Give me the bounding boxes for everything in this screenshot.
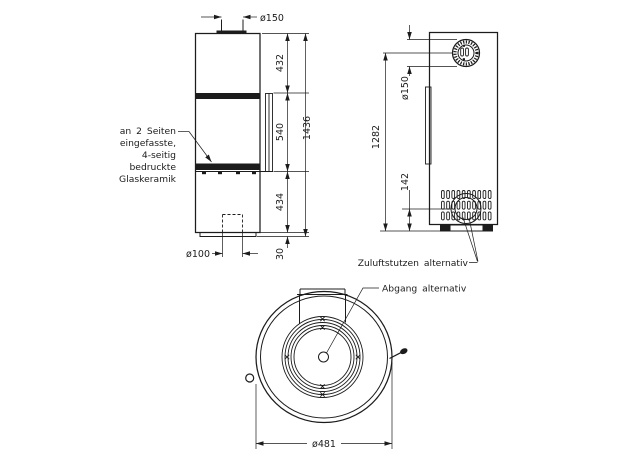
dim-434-label: 434 <box>275 193 286 211</box>
drawing-canvas: ø100 ø150 432 540 434 30 1436 an 2 Seite… <box>0 0 624 460</box>
front-flue-pipe <box>222 20 244 31</box>
dim-o481-label: ø481 <box>312 439 336 450</box>
plan-view: ø481 Abgang alternativ <box>246 284 467 451</box>
front-glass-bottom-band <box>196 164 261 171</box>
plan-diameter-extensions <box>256 362 392 449</box>
side-vent-grille <box>442 191 492 220</box>
dim-142-label: 142 <box>400 173 411 191</box>
side-flue-extensions <box>383 40 457 67</box>
front-shelf-ticks <box>202 172 256 174</box>
front-view: ø100 ø150 432 540 434 30 1436 an 2 Seite… <box>119 13 313 260</box>
dim-1282-label: 1282 <box>371 125 382 149</box>
glass-note-line-4: bedruckte <box>129 162 176 173</box>
plan-outlet-label: Abgang alternativ <box>382 284 467 295</box>
glass-note: an 2 Seiten eingefasste, 4-seitig bedruc… <box>119 126 211 185</box>
side-foot-left <box>441 225 451 231</box>
technical-drawing-stove: ø100 ø150 432 540 434 30 1436 an 2 Seite… <box>0 0 624 460</box>
dim-front-o150-label: ø150 <box>260 13 284 24</box>
dim-o100-label: ø100 <box>186 249 210 260</box>
glass-note-line-1: an 2 Seiten <box>120 126 176 137</box>
dim-540-label: 540 <box>275 123 286 141</box>
side-air-inlet-inner-circle <box>455 198 477 220</box>
glass-note-leader <box>189 132 212 163</box>
side-view: ø150 1282 142 Zuluftstutzen alternativ <box>358 25 498 269</box>
plan-hinge-knob <box>246 374 254 382</box>
front-body <box>196 34 261 233</box>
dim-1436-label: 1436 <box>302 116 313 140</box>
side-body <box>430 33 498 225</box>
side-flue-outlet <box>453 40 480 67</box>
air-inlet-label: Zuluftstutzen alternativ <box>358 258 469 269</box>
glass-note-line-5: Glaskeramik <box>119 174 177 185</box>
plan-center-outlet <box>319 352 329 362</box>
front-glass-top-band <box>196 93 261 99</box>
glass-note-line-3: 4-seitig <box>142 150 176 161</box>
front-bottom-inlet-hidden <box>223 215 243 233</box>
dim-432-label: 432 <box>275 54 286 72</box>
glass-note-line-2: eingefasste, <box>120 138 176 149</box>
dim-side-o150-label: ø150 <box>400 76 411 100</box>
side-glass-edge <box>426 87 432 164</box>
side-foot-right <box>483 225 493 231</box>
dim-30-label: 30 <box>275 248 286 260</box>
